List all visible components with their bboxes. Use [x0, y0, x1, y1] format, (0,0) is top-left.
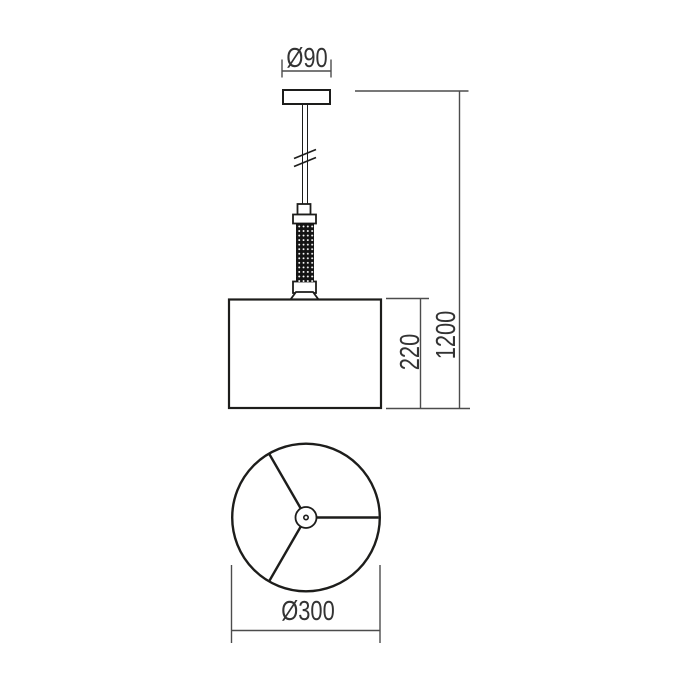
shade-side-outline — [229, 300, 381, 409]
dim-label-overall-height: 1200 — [432, 311, 460, 360]
cable-break-icon — [294, 150, 316, 159]
socket-knurl-texture — [296, 223, 314, 282]
spider-hub-ring — [296, 507, 317, 528]
ceiling-canopy-outline — [283, 90, 330, 104]
technical-drawing-canvas: Ø90 220 1200 Ø300 — [0, 0, 700, 700]
cord-grip-outline — [298, 204, 311, 215]
dim-label-shade-diameter: Ø300 — [281, 597, 334, 625]
shade-connector-outline — [291, 292, 319, 300]
dim-label-shade-height: 220 — [396, 334, 424, 370]
shade-bottom-view — [232, 444, 380, 592]
dim-label-canopy-diameter: Ø90 — [286, 44, 327, 72]
drawing-linework — [0, 0, 700, 700]
cable-break-icon — [294, 158, 316, 167]
